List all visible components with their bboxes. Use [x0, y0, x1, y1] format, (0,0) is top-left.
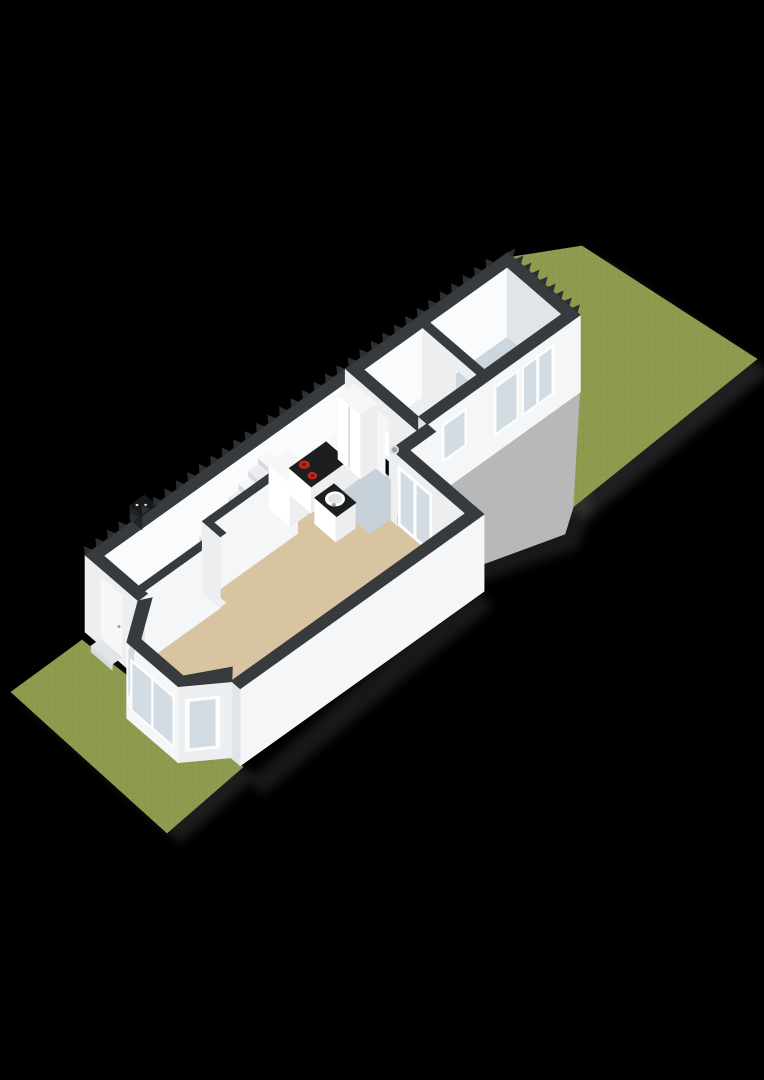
french-door-wall-face-left [391, 449, 397, 525]
stove-burner-1-center [302, 463, 306, 466]
bay-window-right-glass [190, 699, 215, 748]
sink-faucet [332, 503, 336, 506]
floorplan-stage [0, 0, 764, 1080]
meter-box-tick-2 [144, 504, 147, 506]
sink-basin-inner [328, 494, 342, 504]
french-door-glass-right [417, 485, 429, 547]
french-door-glass-left [401, 472, 413, 534]
kitchen-tall-cabinet-seam [349, 406, 350, 467]
front-door-handle [118, 625, 121, 628]
washing-machine-door-ring [392, 447, 397, 452]
stove-burner-2-center [311, 474, 315, 477]
kitchen-tall-cabinet-side [361, 403, 377, 479]
se-wall-end-face [231, 681, 240, 766]
back-room-window2-mullion [537, 358, 540, 404]
meter-box-tick-1 [136, 504, 139, 506]
floorplan-3d-render [0, 0, 764, 1080]
